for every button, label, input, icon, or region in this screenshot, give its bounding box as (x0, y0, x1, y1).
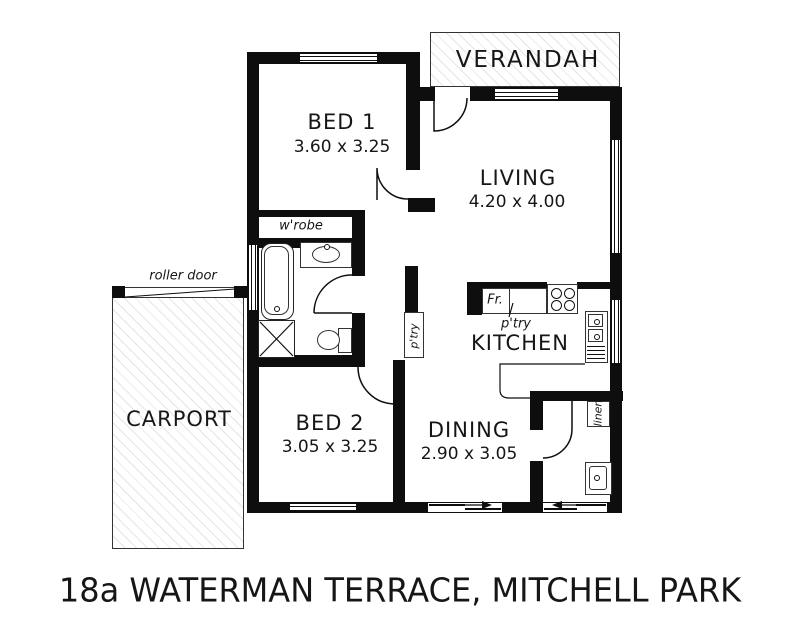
dining-slider-arrowhead (482, 501, 492, 509)
floor-plan: VERANDAH CARPORT roller door w'r (0, 0, 800, 620)
bed2-door (358, 367, 395, 404)
bed1-dims: 3.60 x 3.25 (294, 137, 391, 157)
bathroom-door (314, 275, 352, 313)
kitchen-label: KITCHEN (471, 331, 569, 355)
plan-title: 18a WATERMAN TERRACE, MITCHELL PARK (59, 571, 741, 610)
living-label: LIVING (480, 166, 556, 190)
living-dims: 4.20 x 4.00 (469, 192, 566, 212)
bed2-label: BED 2 (296, 411, 365, 435)
dining-label: DINING (428, 418, 510, 442)
roller-door-line (125, 289, 235, 297)
dining-dims: 2.90 x 3.05 (421, 444, 518, 464)
bed1-door (377, 168, 408, 200)
door-swing-overlay (0, 0, 800, 620)
laundry-slider-arrowhead (552, 501, 562, 509)
pantry-leader-line (509, 303, 513, 317)
kitchen-peninsula-counter (500, 364, 585, 398)
shower-screen-x (260, 322, 293, 356)
entry-door (434, 98, 467, 131)
bed1-label: BED 1 (308, 110, 377, 134)
bed2-dims: 3.05 x 3.25 (282, 437, 379, 457)
laundry-door (543, 399, 572, 458)
